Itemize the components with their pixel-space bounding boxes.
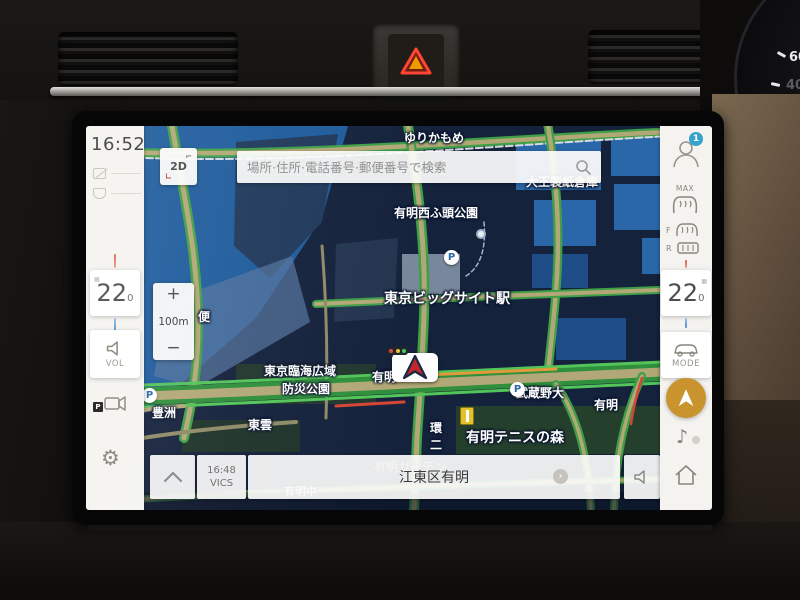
map-label: ゆりかもめ <box>404 129 464 146</box>
front-defrost-icon <box>674 222 700 238</box>
status-row-compass <box>93 168 141 179</box>
hazard-button[interactable] <box>388 34 444 88</box>
search-input[interactable] <box>237 160 575 175</box>
seat-icon: ▦ <box>94 276 100 283</box>
camera-icon <box>99 394 127 414</box>
drive-mode-button[interactable]: MODE <box>661 332 711 378</box>
air-vent-left <box>58 32 238 86</box>
driver-temp-button[interactable]: ▦ 220 <box>90 270 140 316</box>
map-label: 二 <box>430 436 442 453</box>
search-icon[interactable] <box>575 159 592 176</box>
bezel-bottom-trim <box>88 524 712 531</box>
volume-button[interactable]: VOL <box>90 330 140 378</box>
clock: 16:52 <box>91 134 145 155</box>
parking-icon: P <box>444 250 459 265</box>
view-2d-label: 2D <box>170 160 187 173</box>
zoom-in-button[interactable]: + <box>166 286 180 303</box>
media-button[interactable]: ♪ <box>676 426 688 448</box>
zoom-control: + 100m − <box>153 283 194 360</box>
temp-track-hot <box>685 260 687 268</box>
driver-temp-decimal: 0 <box>127 293 133 304</box>
max-label: MAX <box>670 184 700 193</box>
hazard-triangle-icon <box>399 46 433 76</box>
vehicle-arrow-icon <box>400 355 430 380</box>
dashboard-trim-strip <box>50 87 750 96</box>
map-label: 便 <box>198 308 210 325</box>
temp-track-hot <box>114 254 116 268</box>
mode-label: MODE <box>672 359 700 369</box>
rear-defrost-icon <box>675 240 701 256</box>
map-label: 東京ビッグサイト駅 <box>384 288 510 308</box>
media-badge-dot <box>692 436 700 444</box>
profile-badge: 1 <box>689 132 703 146</box>
vics-time: 16:48 <box>207 464 236 478</box>
location-chevron-icon: › <box>553 469 568 484</box>
expand-panel-button[interactable] <box>150 455 195 499</box>
volume-label: VOL <box>106 359 125 369</box>
speaker-icon <box>105 340 125 357</box>
speaker-icon <box>633 469 651 485</box>
status-row-phone <box>93 188 141 199</box>
parking-camera-button[interactable]: P <box>99 394 127 418</box>
sync-icon: ▦ <box>701 278 707 285</box>
touchscreen: ゆりかもめ大王製紙倉庫有明西ふ頭公園東京ビッグサイト駅東京臨海広域防災公園有明武… <box>86 126 712 510</box>
parking-badge: P <box>93 402 103 412</box>
front-defrost-button[interactable]: F <box>666 222 700 238</box>
map-scale-label: 100m <box>158 316 188 328</box>
profile-button[interactable]: 1 <box>671 138 701 172</box>
dashboard-photo: 60 40 20 °C <box>0 0 800 600</box>
dashboard-bottom <box>0 522 800 600</box>
passenger-temp-decimal: 0 <box>698 293 704 304</box>
zoom-out-button[interactable]: − <box>166 340 180 357</box>
map-label: 有明テニスの森 <box>466 427 564 447</box>
map-label: 有明 <box>594 396 618 413</box>
temp-track-cold <box>685 318 687 328</box>
map-label: 東雲 <box>248 416 272 433</box>
rotate-ccw-icon: ∟ <box>165 172 172 181</box>
traffic-light-icon <box>387 347 408 355</box>
air-vent-right <box>588 30 706 84</box>
guidance-mute-button[interactable] <box>624 455 660 499</box>
nav-arrow-icon <box>675 387 697 409</box>
vics-label: VICS <box>210 477 233 491</box>
road-sign-icon <box>460 407 474 425</box>
passenger-temp-button[interactable]: 220 ▦ <box>661 270 711 316</box>
navigation-app-button[interactable] <box>666 378 706 418</box>
car-icon <box>672 342 700 357</box>
current-location-bar[interactable]: 江東区有明 › <box>248 455 620 499</box>
settings-gear-button[interactable]: ⚙ <box>101 446 120 470</box>
gauge-tick-40: 40 <box>786 78 800 93</box>
home-button[interactable] <box>674 464 698 490</box>
front-label: F <box>666 226 671 235</box>
home-icon <box>674 464 698 486</box>
current-location-text: 江東区有明 <box>399 467 469 487</box>
rear-defrost-button[interactable]: R <box>666 240 701 256</box>
phone-icon <box>93 188 106 199</box>
passenger-temp-value: 22 <box>668 279 699 307</box>
parking-icon: P <box>142 388 157 403</box>
rear-label: R <box>666 244 672 253</box>
windshield-defrost-icon <box>670 193 700 215</box>
compass-icon <box>93 168 106 179</box>
vics-info-button[interactable]: 16:48 VICS <box>197 455 246 499</box>
left-sidebar: 16:52 ▦ 220 VOL <box>86 126 144 510</box>
right-sidebar: 1 MAX F R <box>660 126 712 510</box>
map-label: 有明西ふ頭公園 <box>394 204 478 221</box>
search-bar <box>237 151 601 183</box>
map-label: 東京臨海広域 <box>264 362 336 379</box>
map-label: 豊洲 <box>152 404 176 421</box>
map-label: 防災公園 <box>282 380 330 397</box>
gauge-tick-60: 60 <box>789 50 800 65</box>
parking-icon: P <box>510 382 525 397</box>
rotate-cw-icon: ⌐ <box>185 152 192 161</box>
driver-temp-value: 22 <box>97 279 128 307</box>
map-view-2d-button[interactable]: 2D ⌐ ∟ <box>160 148 197 185</box>
chevron-up-icon <box>163 471 183 483</box>
vehicle-position-marker <box>392 353 438 382</box>
max-defrost-button[interactable]: MAX <box>670 184 700 219</box>
map-label: 環 <box>430 419 442 436</box>
